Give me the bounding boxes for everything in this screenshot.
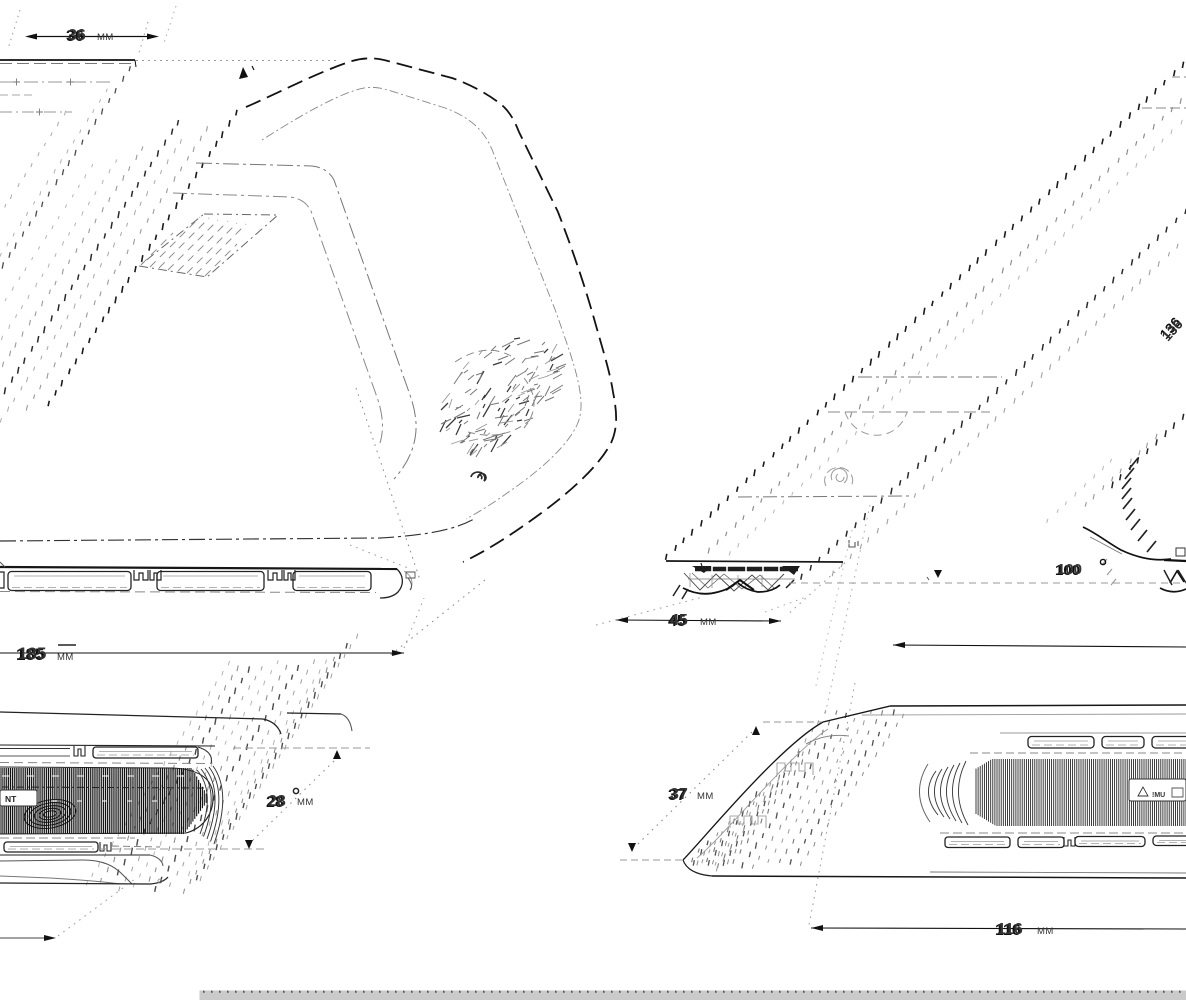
svg-text:NT: NT: [5, 794, 17, 804]
svg-text:37: 37: [670, 786, 688, 803]
svg-text:45: 45: [670, 612, 688, 629]
svg-text:100: 100: [1057, 561, 1082, 578]
svg-text:MM: MM: [297, 797, 314, 808]
svg-text:!MU: !MU: [1152, 792, 1165, 799]
svg-text:MM: MM: [57, 652, 74, 663]
svg-text:MM: MM: [97, 32, 114, 43]
svg-text:MM: MM: [1037, 926, 1054, 937]
svg-text:185: 185: [18, 644, 46, 663]
svg-text:MM: MM: [700, 617, 717, 628]
svg-text:116: 116: [997, 921, 1023, 938]
svg-text:MM: MM: [697, 791, 714, 802]
svg-text:28: 28: [268, 793, 286, 810]
svg-text:36: 36: [68, 27, 86, 44]
